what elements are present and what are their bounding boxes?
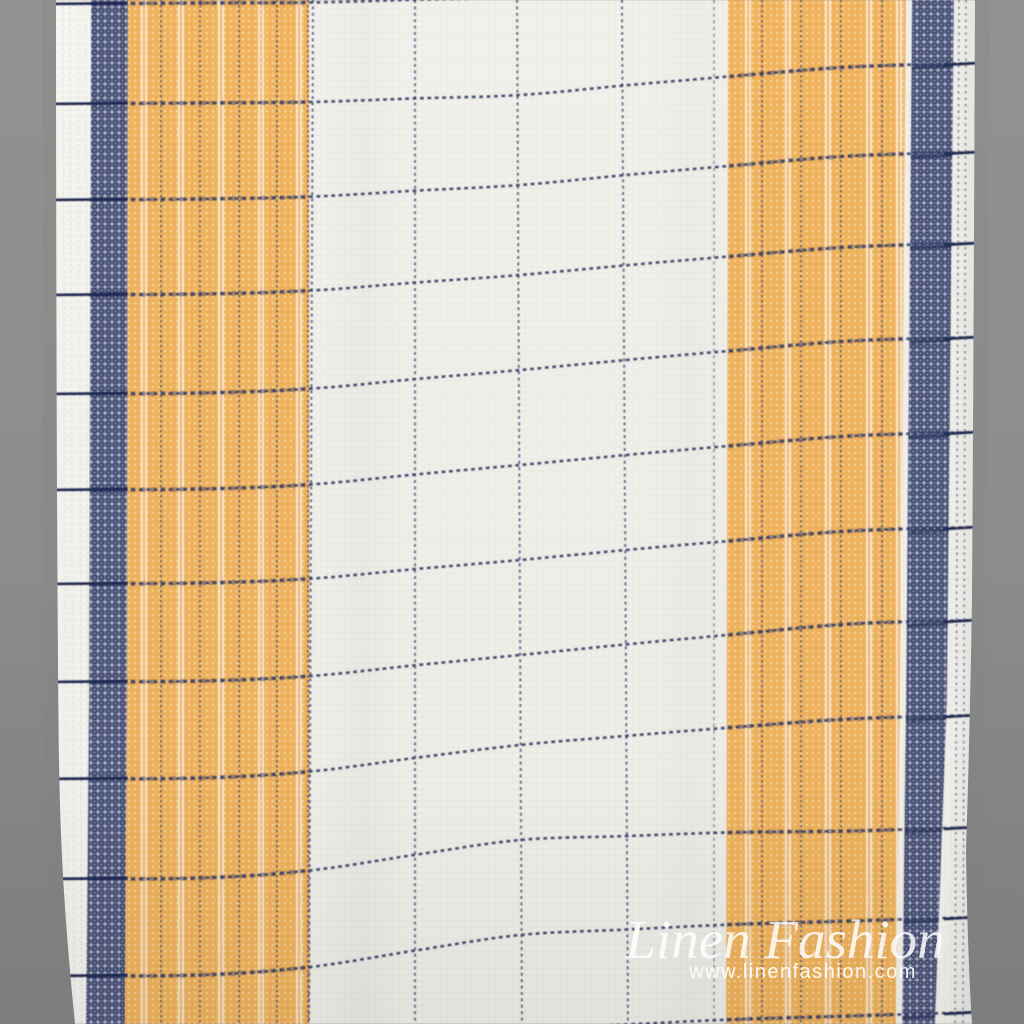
svg-text:www.linenfashion.com: www.linenfashion.com (688, 961, 917, 983)
